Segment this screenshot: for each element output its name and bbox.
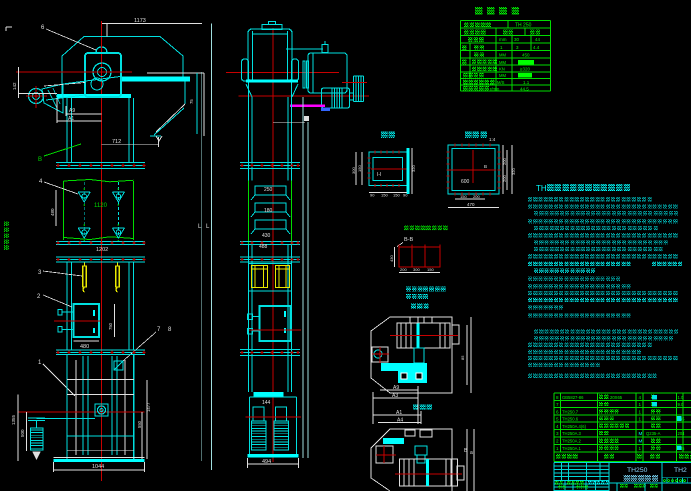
svg-text:750: 750 bbox=[108, 322, 113, 330]
svg-text:TH250A.2: TH250A.2 bbox=[562, 439, 582, 444]
svg-text:470: 470 bbox=[467, 202, 475, 207]
svg-text:M: M bbox=[639, 439, 643, 444]
svg-text:TH: TH bbox=[536, 184, 547, 193]
svg-text:20X65: 20X65 bbox=[610, 395, 623, 400]
svg-text:TH 250: TH 250 bbox=[515, 23, 532, 29]
svg-text:200: 200 bbox=[473, 194, 480, 199]
svg-text:5: 5 bbox=[556, 417, 559, 422]
svg-text:150: 150 bbox=[393, 193, 400, 198]
svg-text:320: 320 bbox=[411, 165, 416, 172]
svg-text:B: B bbox=[38, 157, 42, 163]
svg-text:44.5: 44.5 bbox=[520, 86, 529, 91]
svg-text:204: 204 bbox=[678, 431, 686, 436]
svg-text:1120: 1120 bbox=[94, 203, 108, 209]
svg-text:1: 1 bbox=[639, 409, 642, 414]
svg-text:3: 3 bbox=[556, 431, 559, 436]
svg-text:TH250A.1: TH250A.1 bbox=[562, 446, 582, 451]
svg-text:≥320: ≥320 bbox=[520, 67, 530, 72]
svg-text:1.0: 1.0 bbox=[678, 395, 684, 400]
svg-text:450: 450 bbox=[522, 53, 530, 58]
svg-text:6: 6 bbox=[556, 409, 559, 414]
svg-text:200: 200 bbox=[502, 158, 507, 165]
svg-text:1: 1 bbox=[639, 402, 642, 407]
svg-text:200: 200 bbox=[502, 175, 507, 182]
svg-text:M: M bbox=[639, 431, 643, 436]
svg-text:4.4: 4.4 bbox=[533, 45, 540, 50]
svg-text:90: 90 bbox=[403, 193, 408, 198]
svg-text:1:4: 1:4 bbox=[489, 137, 496, 142]
svg-text:1: 1 bbox=[556, 446, 559, 451]
svg-text:144: 144 bbox=[262, 400, 271, 406]
svg-text:250: 250 bbox=[264, 187, 273, 193]
svg-text:B-B: B-B bbox=[404, 237, 414, 243]
svg-text:1: 1 bbox=[639, 446, 642, 451]
svg-text:7: 7 bbox=[556, 402, 559, 407]
svg-text:A1: A1 bbox=[396, 410, 402, 416]
svg-text:r/min: r/min bbox=[490, 86, 500, 91]
svg-text:1173: 1173 bbox=[134, 18, 146, 24]
svg-text:M/S: M/S bbox=[497, 80, 505, 85]
svg-text:9.0: 9.0 bbox=[678, 402, 684, 407]
svg-text:150: 150 bbox=[357, 165, 362, 172]
svg-text:600: 600 bbox=[461, 179, 470, 185]
svg-text:430: 430 bbox=[262, 233, 271, 239]
svg-text:480: 480 bbox=[50, 208, 55, 216]
svg-text:TH250A.4(6): TH250A.4(6) bbox=[562, 424, 587, 429]
svg-text:142: 142 bbox=[12, 82, 17, 90]
svg-text:MM: MM bbox=[499, 53, 506, 58]
svg-text:TH250: TH250 bbox=[627, 467, 648, 474]
svg-text:2: 2 bbox=[556, 439, 559, 444]
svg-text:150: 150 bbox=[381, 193, 388, 198]
svg-text:MM: MM bbox=[499, 60, 506, 65]
svg-text:1202: 1202 bbox=[96, 247, 108, 253]
svg-text:150: 150 bbox=[427, 267, 434, 272]
svg-text:GB5827-86: GB5827-86 bbox=[562, 395, 584, 400]
svg-text:480: 480 bbox=[80, 344, 89, 350]
svg-text:TH250.6: TH250.6 bbox=[562, 417, 579, 422]
svg-text:A9: A9 bbox=[69, 108, 75, 114]
svg-text:1: 1 bbox=[639, 417, 642, 422]
svg-text:8: 8 bbox=[556, 395, 559, 400]
svg-text:MM: MM bbox=[499, 73, 506, 78]
svg-text:75: 75 bbox=[189, 99, 194, 104]
svg-text:1.1: 1.1 bbox=[523, 80, 530, 85]
svg-text:90: 90 bbox=[370, 193, 375, 198]
svg-text:TH250A.3: TH250A.3 bbox=[562, 431, 582, 436]
svg-text:30: 30 bbox=[514, 37, 520, 42]
svg-text:1044: 1044 bbox=[92, 464, 104, 470]
svg-text:1355: 1355 bbox=[11, 414, 16, 425]
svg-text:Q235-A: Q235-A bbox=[646, 431, 661, 436]
svg-text:44: 44 bbox=[535, 37, 541, 42]
svg-text:200: 200 bbox=[400, 267, 407, 272]
svg-text:TH250.7: TH250.7 bbox=[562, 409, 579, 414]
svg-text:mm: mm bbox=[499, 37, 507, 42]
svg-text:TH2: TH2 bbox=[674, 467, 687, 474]
svg-text:320: 320 bbox=[511, 168, 516, 175]
svg-text:A1: A1 bbox=[68, 116, 74, 122]
svg-text:150: 150 bbox=[460, 194, 467, 199]
svg-text:A4: A4 bbox=[397, 418, 403, 424]
svg-text:488: 488 bbox=[259, 244, 268, 250]
svg-text:430: 430 bbox=[389, 255, 394, 262]
svg-text:180: 180 bbox=[264, 208, 273, 214]
svg-text:550: 550 bbox=[137, 420, 142, 428]
svg-text:85: 85 bbox=[460, 355, 465, 360]
svg-text:B: B bbox=[484, 164, 487, 169]
svg-text:300: 300 bbox=[351, 167, 356, 174]
svg-text:A3: A3 bbox=[392, 393, 398, 399]
svg-text:712: 712 bbox=[112, 139, 121, 145]
svg-text:KN: KN bbox=[499, 67, 505, 72]
svg-text:I-I: I-I bbox=[377, 172, 381, 178]
svg-text:4: 4 bbox=[556, 424, 559, 429]
svg-text:300: 300 bbox=[413, 267, 420, 272]
svg-text:a: a bbox=[470, 450, 473, 456]
svg-text:4: 4 bbox=[639, 395, 642, 400]
svg-text:1477: 1477 bbox=[146, 402, 151, 412]
svg-text:500: 500 bbox=[20, 429, 25, 437]
svg-text:A9: A9 bbox=[393, 385, 399, 391]
svg-text:494: 494 bbox=[262, 459, 271, 465]
